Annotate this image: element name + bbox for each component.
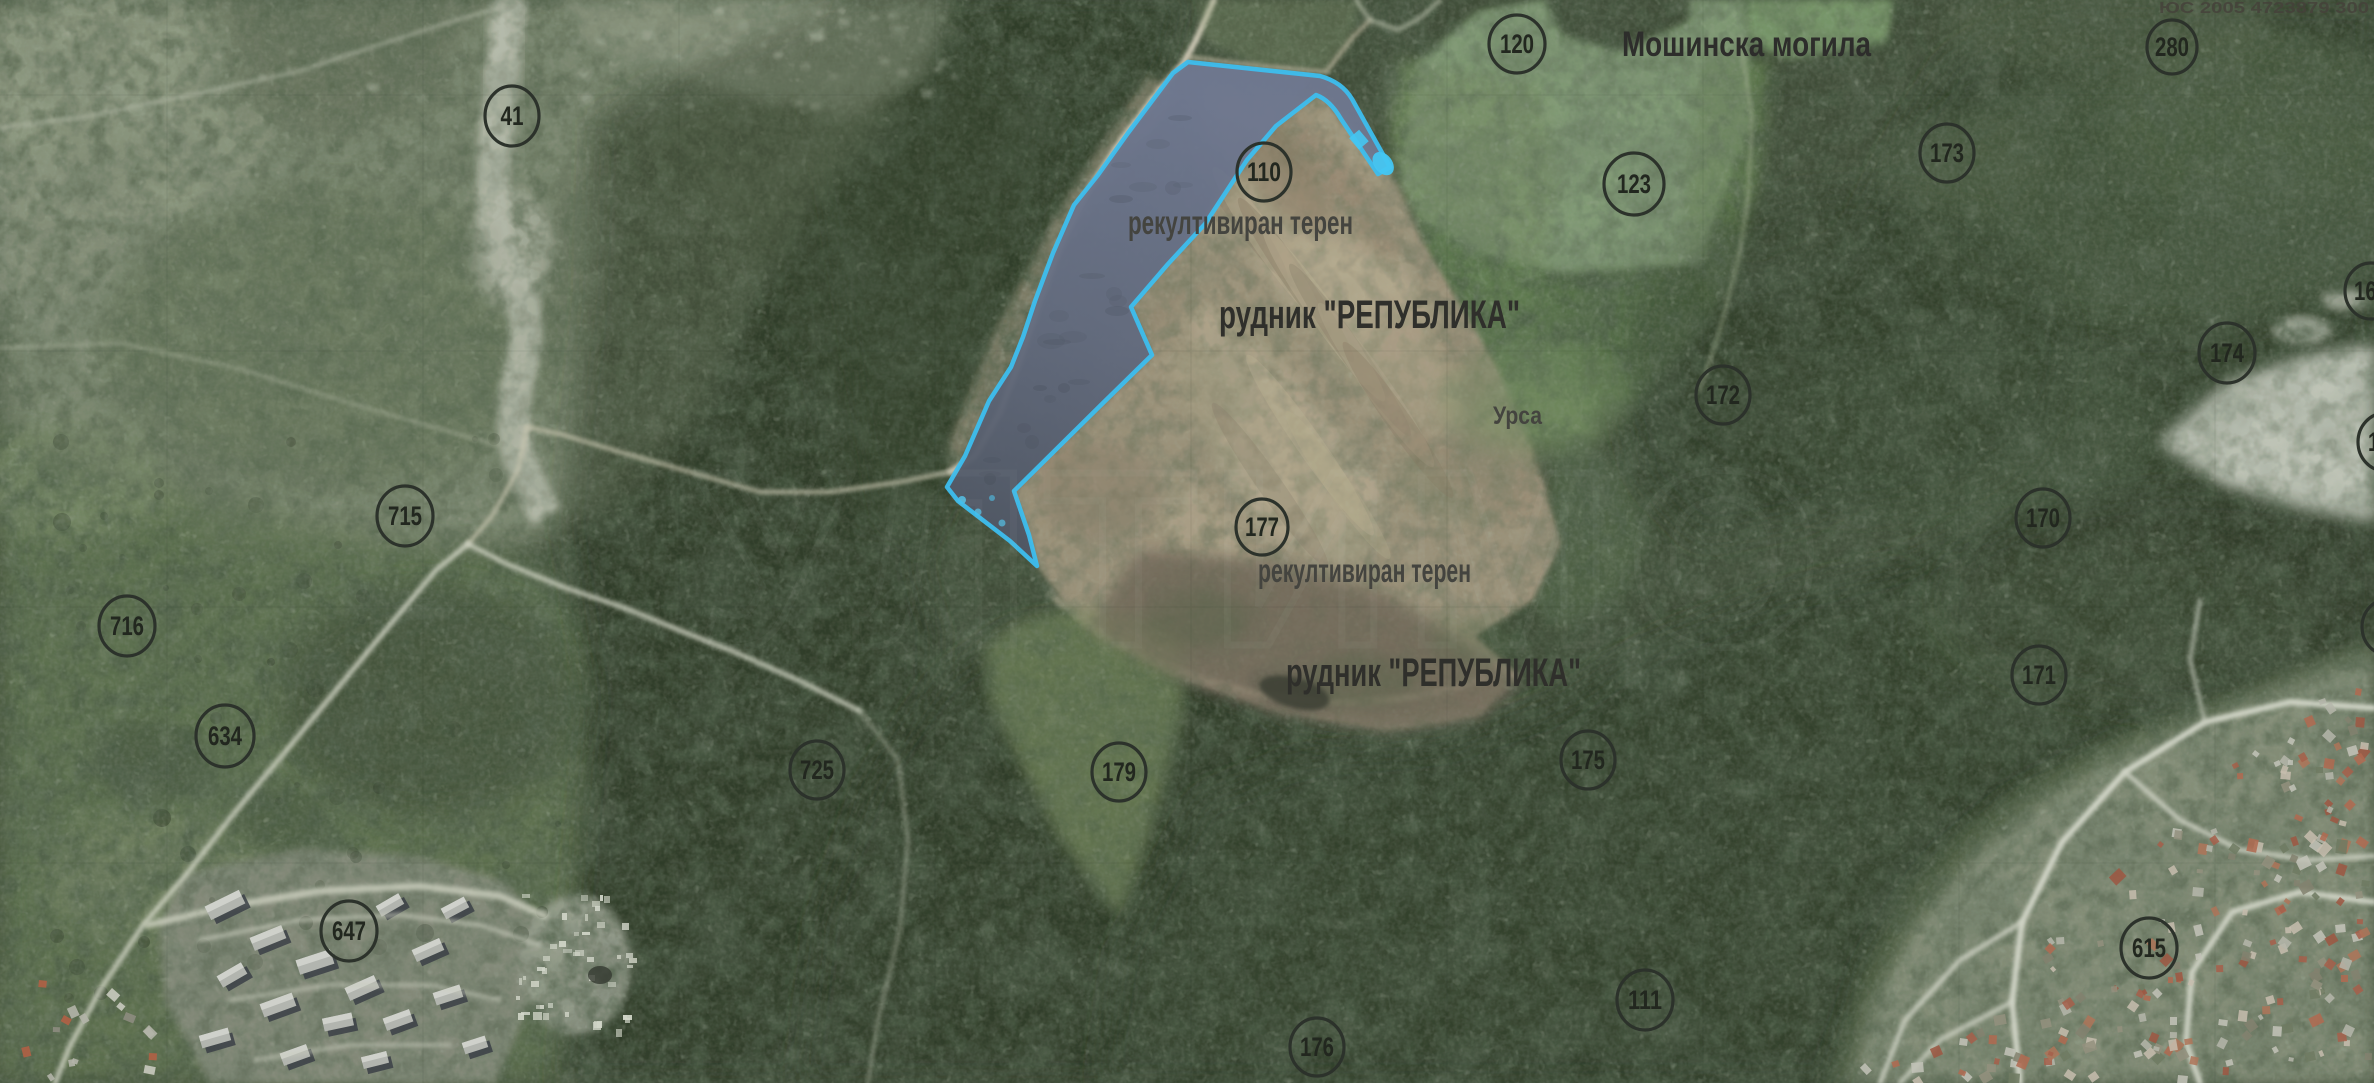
svg-text:41: 41 xyxy=(501,101,524,131)
svg-text:110: 110 xyxy=(1247,157,1281,187)
svg-text:111: 111 xyxy=(1628,985,1662,1015)
svg-text:Урса: Урса xyxy=(1493,402,1543,430)
svg-text:175: 175 xyxy=(1571,745,1605,775)
svg-text:716: 716 xyxy=(110,611,144,641)
svg-text:176: 176 xyxy=(1300,1032,1334,1062)
svg-text:172: 172 xyxy=(1706,380,1740,410)
svg-text:615: 615 xyxy=(2132,933,2166,963)
svg-text:170: 170 xyxy=(2026,503,2060,533)
svg-text:634: 634 xyxy=(208,721,242,751)
svg-text:123: 123 xyxy=(1617,169,1651,199)
svg-text:280: 280 xyxy=(2155,32,2189,62)
svg-text:168: 168 xyxy=(2354,276,2374,306)
svg-text:рекултивиран терен: рекултивиран терен xyxy=(1128,204,1353,241)
svg-text:179: 179 xyxy=(1102,757,1136,787)
svg-text:120: 120 xyxy=(1500,29,1534,59)
svg-text:166: 166 xyxy=(2368,427,2374,457)
svg-text:647: 647 xyxy=(332,916,366,946)
svg-text:рудник "РЕПУБЛИКА": рудник "РЕПУБЛИКА" xyxy=(1219,293,1520,337)
svg-text:рекултивиран терен: рекултивиран терен xyxy=(1258,552,1471,589)
svg-text:171: 171 xyxy=(2022,660,2056,690)
svg-text:715: 715 xyxy=(388,501,422,531)
svg-text:173: 173 xyxy=(1930,138,1964,168)
svg-text:177: 177 xyxy=(1245,512,1279,542)
svg-text:725: 725 xyxy=(800,755,834,785)
svg-text:174: 174 xyxy=(2210,338,2244,368)
svg-text:Мошинска могила: Мошинска могила xyxy=(1622,25,1871,64)
svg-text:рудник "РЕПУБЛИКА": рудник "РЕПУБЛИКА" xyxy=(1286,651,1581,695)
svg-text:ЮС 2005 4723879 300: ЮС 2005 4723879 300 xyxy=(2159,0,2369,17)
